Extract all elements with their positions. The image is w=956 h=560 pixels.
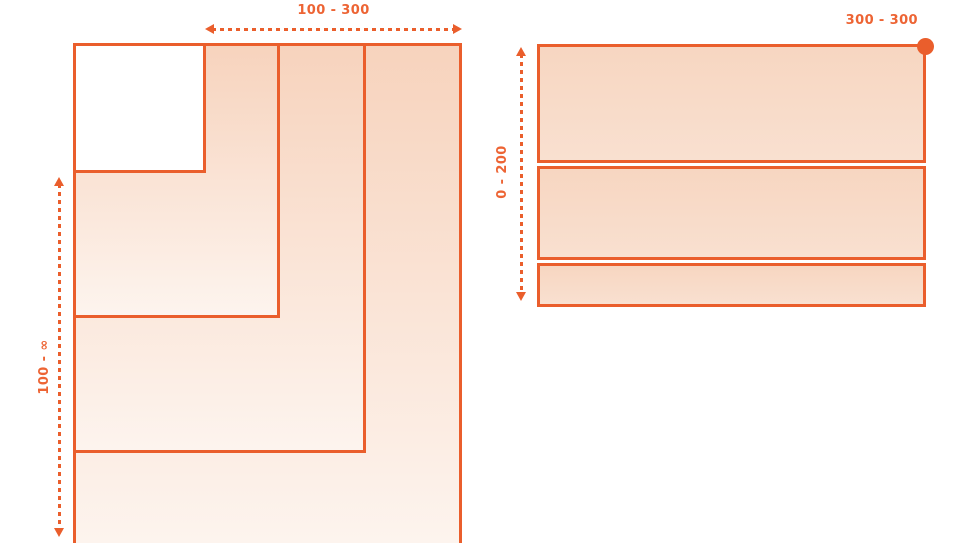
constrained-box-minimum bbox=[73, 43, 206, 173]
arrowhead-down-icon bbox=[516, 292, 526, 301]
width-range-label: 100 - 300 bbox=[205, 3, 462, 18]
dashed-line bbox=[212, 28, 455, 31]
band-row-3 bbox=[537, 263, 926, 307]
height-range-arrow bbox=[54, 177, 64, 537]
height-range-label: 100 - ∞ bbox=[36, 317, 54, 417]
height-range-arrow-right bbox=[516, 47, 526, 301]
fixed-size-label: 300 - 300 bbox=[830, 13, 918, 28]
height-range-label-right: 0 - 200 bbox=[494, 122, 512, 222]
dashed-line bbox=[58, 184, 61, 530]
constraints-illustration: 100 - 300 100 - ∞ 300 - 300 0 - 200 bbox=[0, 0, 956, 560]
arrowhead-right-icon bbox=[453, 24, 462, 34]
corner-point-dot bbox=[917, 38, 934, 55]
band-row-2 bbox=[537, 166, 926, 260]
dashed-line bbox=[520, 54, 523, 294]
band-row-1 bbox=[537, 44, 926, 163]
arrowhead-down-icon bbox=[54, 528, 64, 537]
width-range-arrow bbox=[205, 24, 462, 34]
